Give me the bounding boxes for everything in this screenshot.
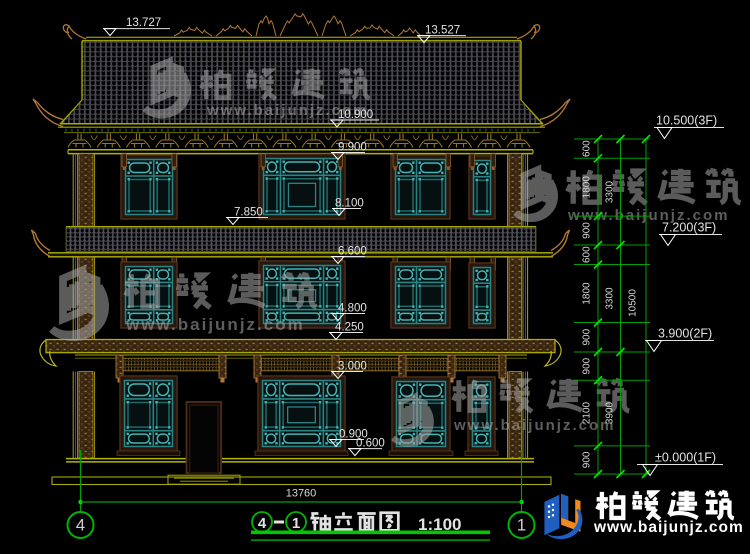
svg-text:1800: 1800 — [582, 282, 593, 305]
svg-text:600: 600 — [582, 246, 593, 263]
svg-text:6.600: 6.600 — [338, 246, 367, 258]
svg-text:1: 1 — [292, 515, 300, 532]
svg-text:1800: 1800 — [582, 176, 593, 199]
svg-text:900: 900 — [582, 357, 593, 374]
svg-text:www.baijunjz.com: www.baijunjz.com — [125, 315, 305, 334]
svg-text:13760: 13760 — [286, 488, 317, 500]
svg-text:10.900: 10.900 — [338, 109, 373, 121]
svg-text:13.727: 13.727 — [126, 17, 161, 29]
svg-text:3300: 3300 — [605, 287, 616, 310]
svg-text:4.800: 4.800 — [338, 303, 367, 315]
svg-text:7.200(3F): 7.200(3F) — [662, 221, 716, 235]
svg-text:4: 4 — [258, 515, 267, 532]
svg-text:900: 900 — [582, 328, 593, 345]
svg-text:900: 900 — [582, 451, 593, 468]
svg-text:10.500(3F): 10.500(3F) — [656, 114, 717, 128]
svg-text:8.100: 8.100 — [335, 198, 364, 210]
svg-text:3300: 3300 — [605, 180, 616, 203]
svg-text:0.600: 0.600 — [356, 438, 385, 450]
svg-text:900: 900 — [582, 222, 593, 239]
svg-text:3900: 3900 — [605, 401, 616, 424]
svg-text:3.000: 3.000 — [338, 361, 367, 373]
svg-text:600: 600 — [582, 140, 593, 157]
svg-text:4: 4 — [76, 516, 85, 535]
svg-text:www.baijunjz.com: www.baijunjz.com — [593, 519, 744, 536]
svg-text:4.250: 4.250 — [335, 322, 364, 334]
svg-text:±0.000(1F): ±0.000(1F) — [655, 451, 716, 465]
svg-text:10500: 10500 — [628, 289, 639, 317]
svg-text:3.900(2F): 3.900(2F) — [658, 327, 712, 341]
svg-text:7.850: 7.850 — [234, 207, 263, 219]
svg-text:9.900: 9.900 — [338, 142, 367, 154]
svg-text:2100: 2100 — [582, 401, 593, 424]
svg-text:13.527: 13.527 — [425, 25, 460, 37]
svg-text:1: 1 — [517, 516, 526, 535]
